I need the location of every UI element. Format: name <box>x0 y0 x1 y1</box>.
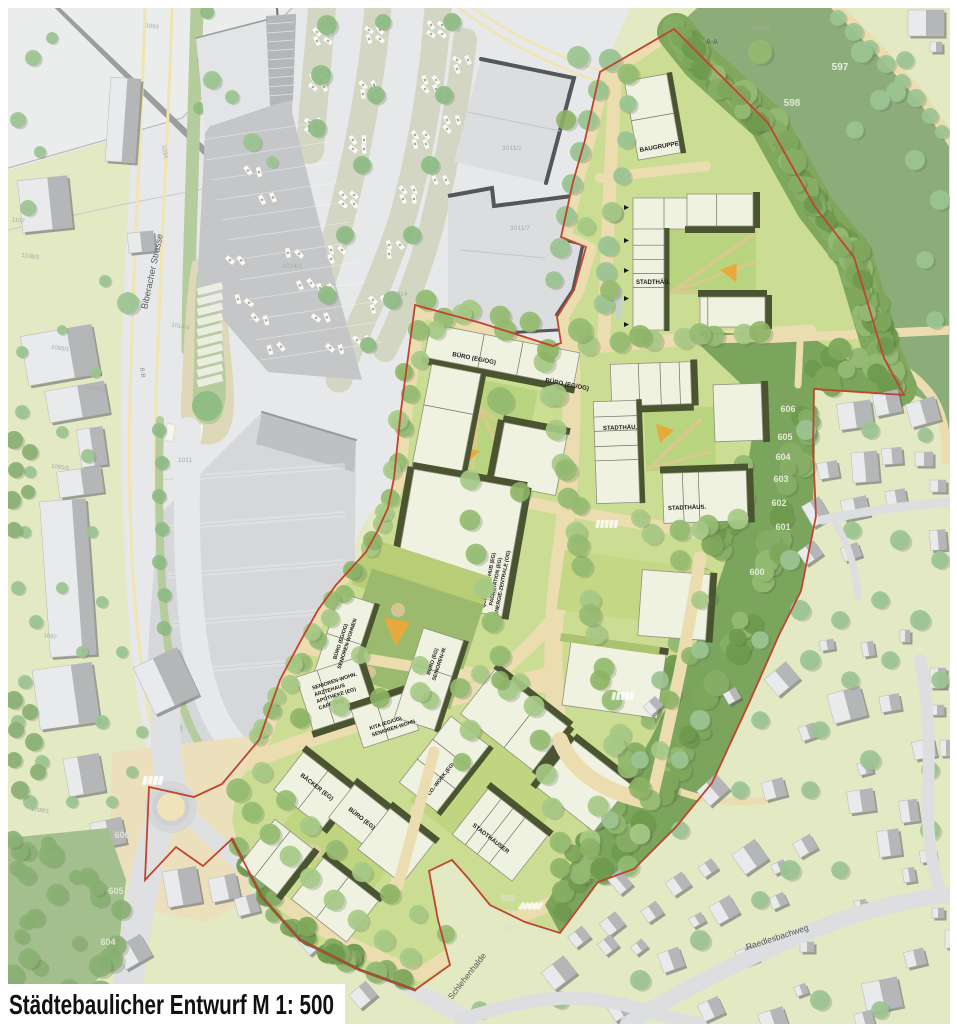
svg-text:598: 598 <box>784 98 801 109</box>
svg-text:602: 602 <box>771 498 786 508</box>
svg-text:592: 592 <box>501 894 515 903</box>
svg-text:STADTHÄU.: STADTHÄU. <box>636 279 671 286</box>
svg-text:1014/1: 1014/1 <box>282 263 302 270</box>
svg-text:606: 606 <box>780 404 795 414</box>
svg-text:1014: 1014 <box>393 291 408 298</box>
svg-text:Städtebaulicher Entwurf M 1: 5: Städtebaulicher Entwurf M 1: 500 <box>9 989 334 1020</box>
svg-text:597: 597 <box>832 62 849 73</box>
svg-text:590: 590 <box>503 924 517 933</box>
svg-text:604: 604 <box>100 937 115 947</box>
svg-text:1011/2: 1011/2 <box>502 145 522 152</box>
svg-text:601: 601 <box>775 522 790 532</box>
svg-text:600: 600 <box>749 567 764 577</box>
svg-text:603: 603 <box>773 474 788 484</box>
svg-text:604: 604 <box>775 452 790 462</box>
svg-text:STADTHÄUS.: STADTHÄUS. <box>668 504 707 512</box>
svg-text:605: 605 <box>108 886 123 896</box>
svg-text:A-A: A-A <box>706 39 718 46</box>
svg-text:606: 606 <box>114 830 129 840</box>
svg-text:605: 605 <box>777 432 792 442</box>
svg-text:1011/7: 1011/7 <box>510 225 530 232</box>
svg-text:1011: 1011 <box>178 457 192 464</box>
svg-text:1011/1: 1011/1 <box>750 25 770 32</box>
svg-text:STADTHÄU.: STADTHÄU. <box>603 424 638 432</box>
